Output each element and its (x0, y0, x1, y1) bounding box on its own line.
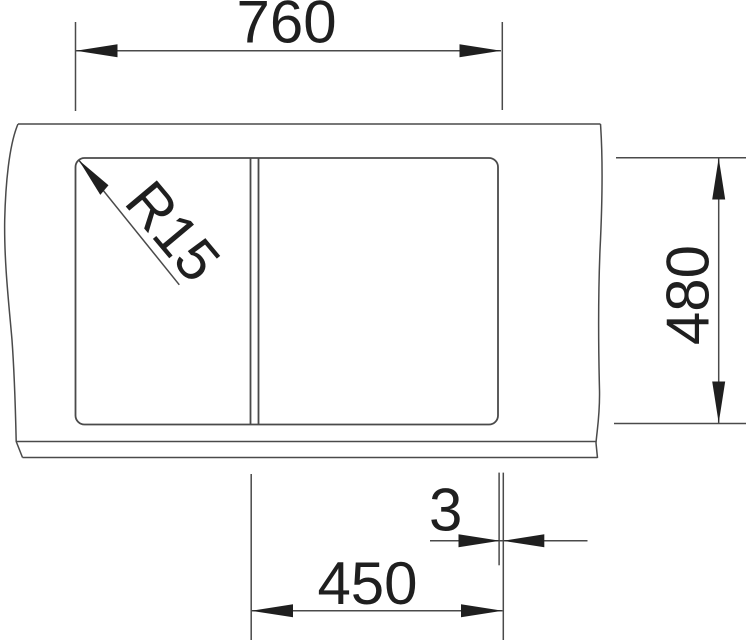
svg-text:450: 450 (317, 550, 417, 617)
svg-text:480: 480 (655, 245, 722, 345)
svg-text:3: 3 (429, 476, 462, 543)
svg-text:760: 760 (237, 0, 337, 56)
